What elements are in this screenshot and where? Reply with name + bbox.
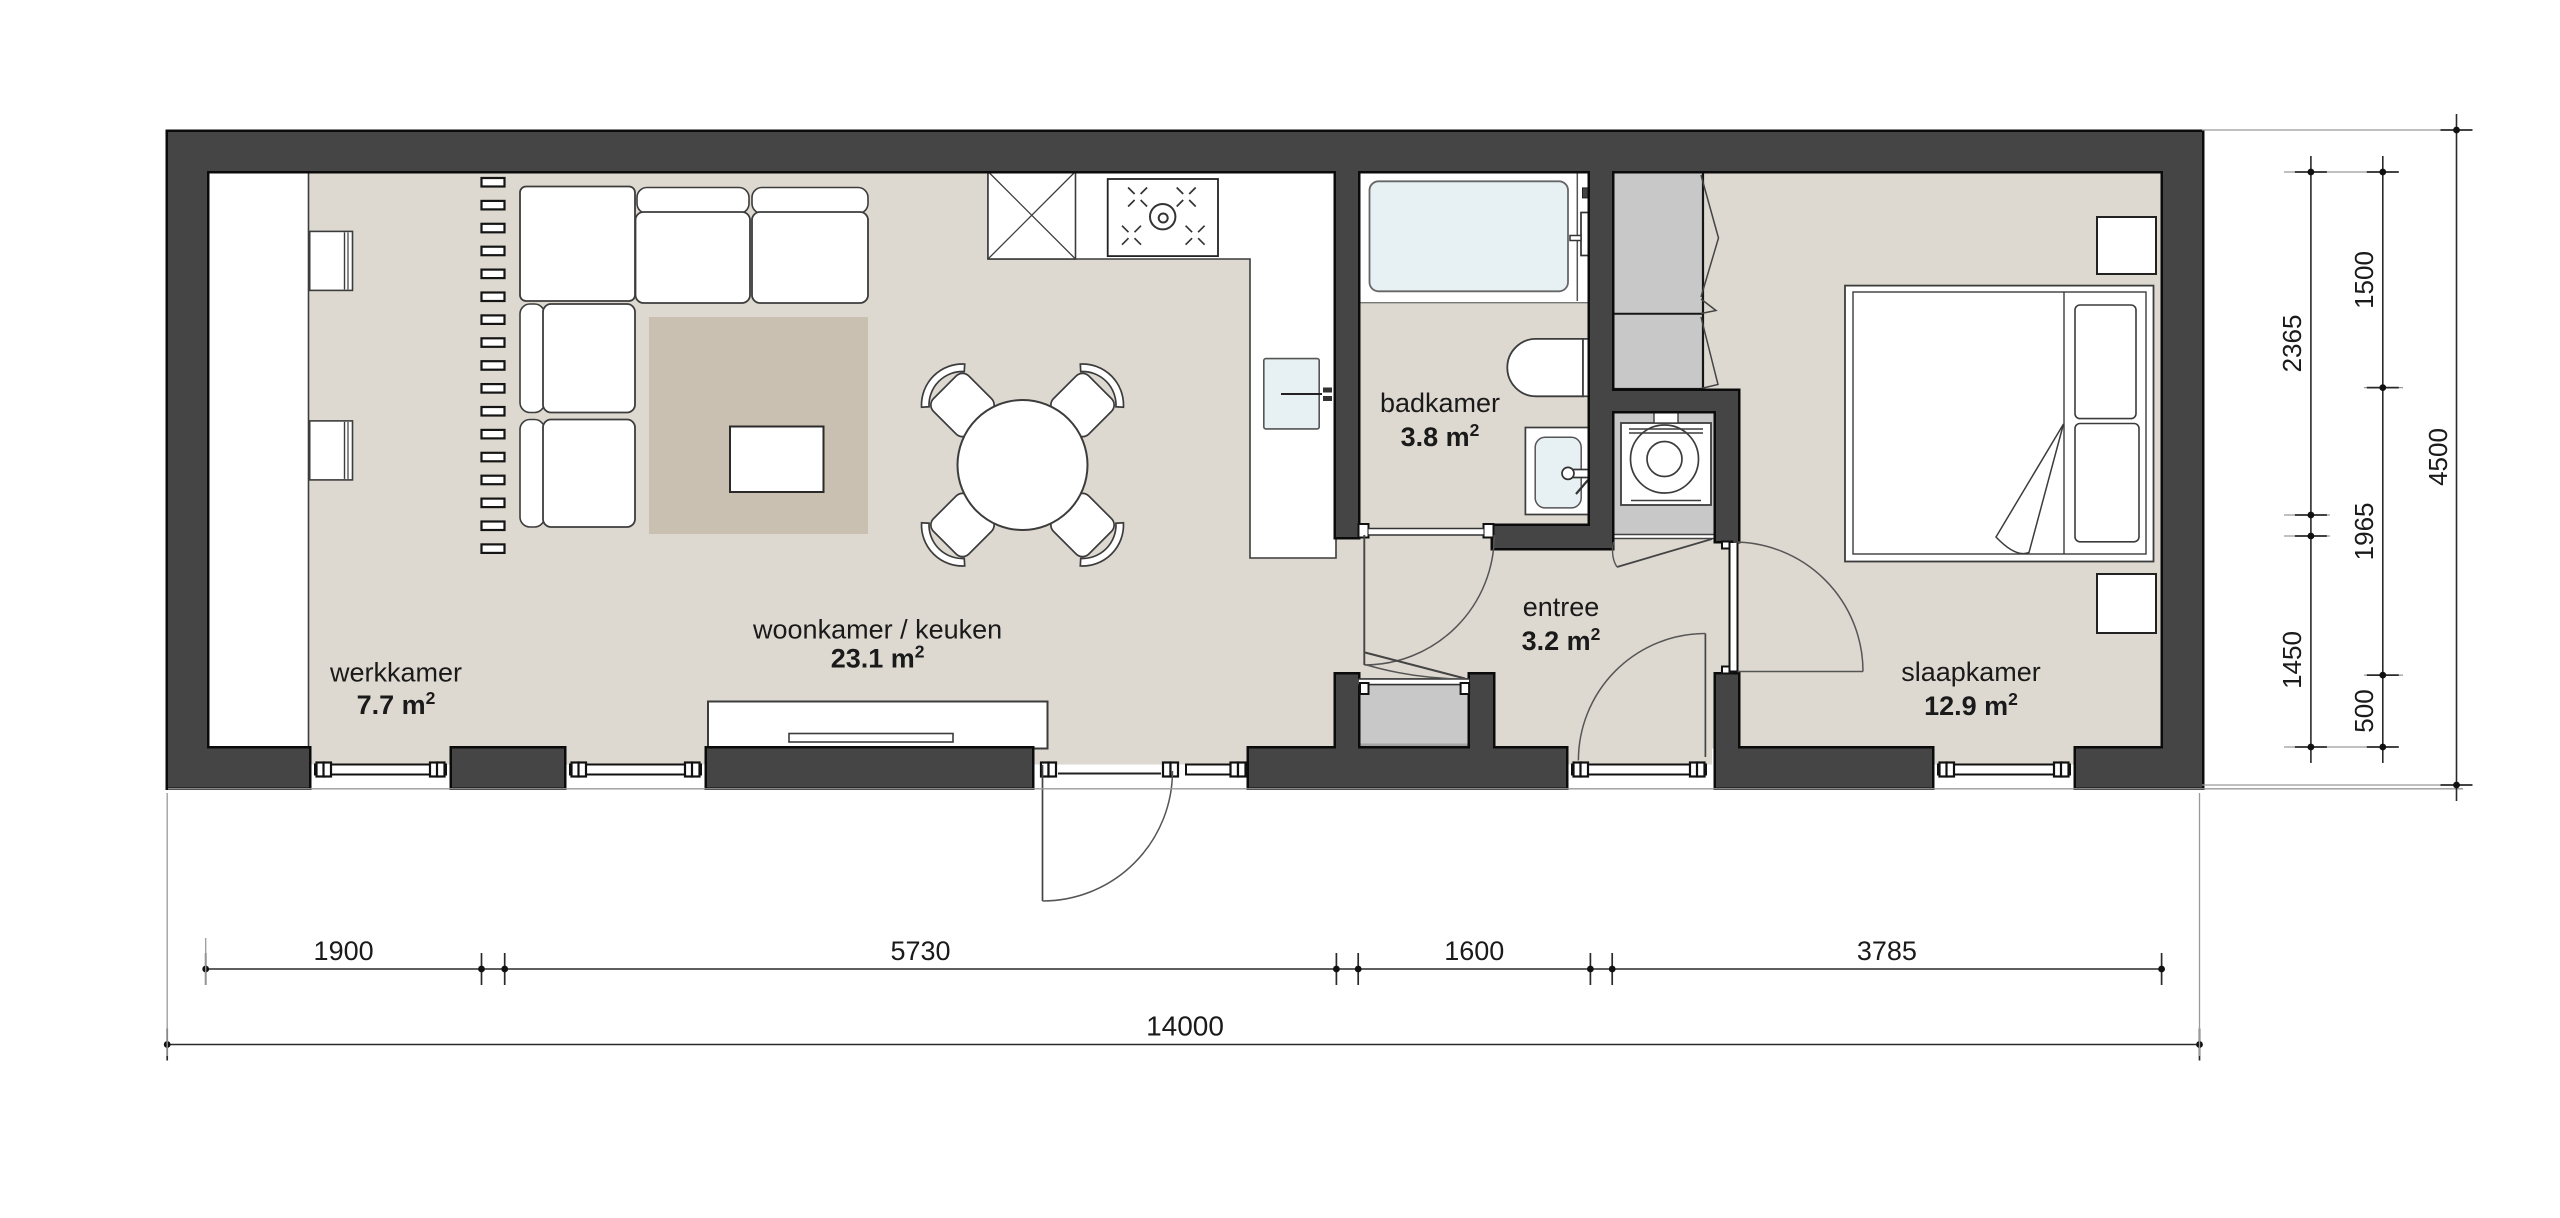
svg-text:1600: 1600 (1444, 936, 1504, 966)
svg-text:entree: entree (1523, 592, 1600, 622)
svg-text:badkamer: badkamer (1380, 388, 1500, 418)
svg-text:4500: 4500 (2423, 428, 2453, 486)
svg-text:5730: 5730 (890, 936, 950, 966)
svg-text:slaapkamer: slaapkamer (1901, 657, 2041, 687)
svg-text:500: 500 (2349, 689, 2379, 732)
svg-text:23.1 m2: 23.1 m2 (831, 642, 925, 674)
svg-text:3.8 m2: 3.8 m2 (1401, 420, 1480, 452)
svg-text:1965: 1965 (2349, 502, 2379, 560)
svg-text:1500: 1500 (2349, 251, 2379, 309)
svg-text:14000: 14000 (1146, 1011, 1224, 1042)
svg-text:werkkamer: werkkamer (329, 657, 462, 687)
svg-text:1450: 1450 (2277, 631, 2307, 689)
svg-text:woonkamer / keuken: woonkamer / keuken (752, 615, 1002, 645)
svg-text:1900: 1900 (314, 936, 374, 966)
svg-text:7.7 m2: 7.7 m2 (357, 688, 436, 720)
svg-text:3785: 3785 (1857, 936, 1917, 966)
svg-text:3.2 m2: 3.2 m2 (1522, 624, 1601, 656)
svg-text:2365: 2365 (2277, 315, 2307, 373)
svg-text:12.9 m2: 12.9 m2 (1924, 689, 2018, 721)
